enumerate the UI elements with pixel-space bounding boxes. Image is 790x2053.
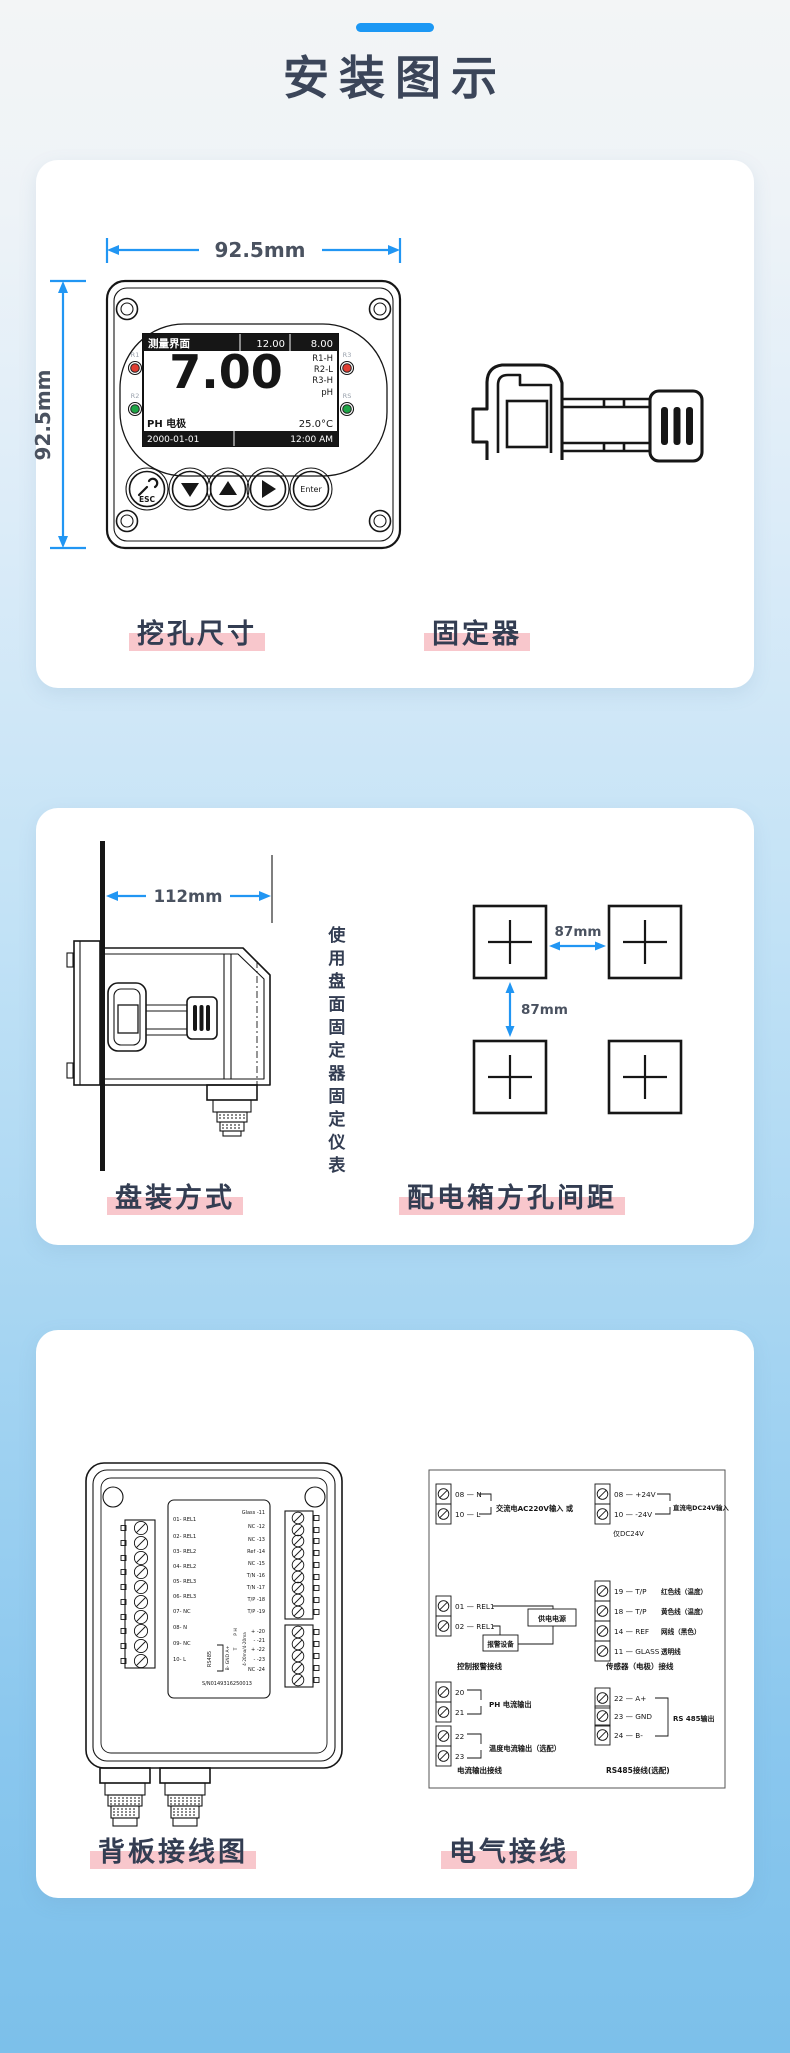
- lcd-setpoint-low: 8.00: [311, 339, 333, 350]
- terminal-label: 02 — REL1: [455, 1622, 495, 1631]
- rs485-wiring-caption: RS485接线(选配): [606, 1765, 670, 1775]
- svg-text:R1: R1: [131, 351, 140, 359]
- terminal-label: 22: [455, 1732, 464, 1741]
- terminal-label: 03- REL2: [173, 1549, 196, 1555]
- caption-panel-mounting: 盘装方式: [107, 1176, 243, 1215]
- terminal-label: 05- REL3: [173, 1579, 196, 1585]
- title-accent-bar: [356, 23, 434, 32]
- terminal-label: 11 — GLASS: [614, 1647, 660, 1656]
- svg-text:R2: R2: [131, 392, 140, 400]
- terminal-label: 10 — L: [455, 1510, 481, 1519]
- rs485-label: RS485: [207, 1651, 213, 1667]
- caption-hole-spacing: 配电箱方孔间距: [399, 1176, 625, 1215]
- terminal-label: NC -15: [248, 1561, 265, 1567]
- terminal-label: 19 — T/P: [614, 1587, 647, 1596]
- current-output-group: 20 21 22 23 PH 电流输出 温度电流输出（选配） 电流输出接线: [436, 1682, 561, 1775]
- terminal-label: 08 — N: [455, 1490, 482, 1499]
- mounting-note: 使用盘面固定器固定仪表: [324, 926, 344, 1179]
- caption-cutout-size: 挖孔尺寸: [129, 612, 265, 651]
- terminal-label: 06- REL3: [173, 1594, 196, 1600]
- terminal-label: NC -12: [248, 1524, 265, 1530]
- lcd-temperature: 25.0°C: [299, 419, 333, 430]
- dim-depth-label: 112mm: [154, 887, 223, 906]
- terminal-label: 09- NC: [173, 1641, 191, 1647]
- dim-height-label: 92.5mm: [31, 369, 55, 460]
- terminal-label: 20: [455, 1688, 465, 1697]
- terminal-label: 23: [455, 1752, 465, 1761]
- terminal-label: 23 — GND: [614, 1712, 652, 1721]
- terminal-label: 02- REL1: [173, 1534, 196, 1540]
- ph-output-label: PH 电流输出: [489, 1700, 532, 1709]
- terminal-label: 14 — REF: [614, 1627, 649, 1636]
- ph-channel-label: P H: [233, 1628, 239, 1636]
- dc-note: 仅DC24V: [613, 1529, 644, 1538]
- terminal-label: Glass -11: [242, 1510, 265, 1516]
- page-background: 安装图示 92.5mm 92.5mm: [0, 0, 790, 2053]
- wire-color-label: 红色线（温度）: [661, 1587, 707, 1596]
- rs485-output-label: RS 485输出: [673, 1714, 714, 1723]
- terminal-label: 22 — A+: [614, 1694, 646, 1703]
- lcd-date: 2000-01-01: [147, 435, 199, 445]
- backplate-drawing: 01- REL1 02- REL1 03- REL2 04- REL2 05- …: [80, 1453, 350, 1831]
- terminal-label: - -23: [253, 1657, 265, 1663]
- depth-dimension: 112mm: [106, 855, 272, 923]
- terminal-label: 07- NC: [173, 1609, 191, 1615]
- terminal-label: T/N -16: [246, 1573, 265, 1579]
- serial-number: S/N0149316250013: [202, 1681, 252, 1687]
- led-rs: RS: [341, 392, 354, 416]
- lcd-time: 12:00 AM: [290, 435, 333, 445]
- spacing-h-label: 87mm: [555, 924, 602, 940]
- caption-backplate-wiring: 背板接线图: [90, 1830, 256, 1869]
- led-r2: R2: [129, 392, 142, 416]
- spacing-v-dimension: 87mm: [506, 982, 568, 1037]
- terminal-label: T/N -17: [246, 1585, 265, 1591]
- relay-group: 01 — REL1 02 — REL1 供电电源 报警设备 控制报警接线: [436, 1596, 576, 1671]
- ac-power-group: 08 — N 10 — L 交流电AC220V输入 或: [436, 1484, 574, 1524]
- power-supply-box: 供电电源: [537, 1614, 566, 1623]
- wire-color-label: 网线（黑色）: [661, 1627, 701, 1636]
- right-terminal-strips: [285, 1511, 319, 1687]
- lcd-relay-status-3: R3-H: [312, 376, 333, 386]
- terminal-label: T/P -18: [246, 1597, 265, 1603]
- wire-color-label: 黄色线（温度）: [661, 1607, 707, 1616]
- svg-text:R3: R3: [343, 351, 352, 359]
- lcd-screen: 测量界面 12.00 8.00 7.00 R1-H R2-L R3-H pH P…: [143, 334, 338, 446]
- side-view-drawing: 112mm: [38, 833, 295, 1183]
- wrench-icon: [139, 479, 157, 495]
- caption-fixer: 固定器: [424, 612, 530, 651]
- left-terminal-strip: [121, 1520, 155, 1668]
- led-r1: R1: [129, 351, 142, 375]
- caption-electrical-wiring: 电气接线: [441, 1830, 577, 1869]
- front-view-drawing: 92.5mm 92.5mm: [36, 230, 406, 560]
- terminal-label: 18 — T/P: [614, 1607, 647, 1616]
- terminal-label: NC -24: [248, 1667, 265, 1673]
- ac-input-label: 交流电AC220V输入 或: [496, 1504, 574, 1513]
- spacing-v-label: 87mm: [521, 1002, 568, 1018]
- terminal-label: + -20: [251, 1629, 265, 1635]
- enter-key-label: Enter: [300, 485, 322, 494]
- rs485-group: 22 — A+ 23 — GND 24 — B- RS 485输出 RS485接…: [595, 1688, 714, 1775]
- right-key: [247, 468, 289, 510]
- terminal-label: 10 — -24V: [614, 1510, 652, 1519]
- height-dimension: 92.5mm: [31, 281, 86, 548]
- current-output-label: 4-20ma/4-20ma: [242, 1632, 247, 1666]
- arrow-right-icon: [262, 480, 276, 498]
- terminal-label: - -21: [253, 1638, 265, 1644]
- section-wiring: 01- REL1 02- REL1 03- REL2 04- REL2 05- …: [36, 1330, 754, 1898]
- terminal-label: 01 — REL1: [455, 1602, 495, 1611]
- dim-width-label: 92.5mm: [214, 238, 305, 262]
- down-key: [169, 468, 211, 510]
- terminal-label: 04- REL2: [173, 1564, 196, 1570]
- terminal-label: 24 — B-: [614, 1731, 643, 1740]
- lcd-relay-status-1: R1-H: [312, 354, 333, 364]
- terminal-label: Ref -14: [247, 1549, 265, 1555]
- sensor-group: 19 — T/P 红色线（温度） 18 — T/P 黄色线（温度） 14 — R…: [595, 1581, 707, 1671]
- alarm-device-box: 报警设备: [487, 1640, 514, 1649]
- lcd-probe-label: PH 电极: [147, 417, 187, 430]
- lcd-relay-status-2: R2-L: [314, 365, 333, 375]
- page-title: 安装图示: [0, 42, 790, 108]
- esc-key: ESC: [126, 468, 168, 510]
- terminal-label: 21: [455, 1708, 464, 1717]
- wiring-diagram: 08 — N 10 — L 交流电AC220V输入 或 08 — +24V 10…: [427, 1468, 727, 1790]
- arrow-up-icon: [219, 481, 237, 495]
- up-key: [207, 468, 249, 510]
- svg-text:RS: RS: [343, 392, 352, 400]
- arrow-down-icon: [181, 483, 199, 497]
- lcd-main-value: 7.00: [169, 345, 283, 399]
- enter-key: Enter: [290, 468, 332, 510]
- terminal-label: T/P -19: [246, 1609, 265, 1615]
- sensor-wiring-caption: 传感器（电极）接线: [605, 1661, 674, 1671]
- width-dimension: 92.5mm: [107, 238, 400, 263]
- terminal-label: 10- L: [173, 1657, 186, 1663]
- current-wiring-caption: 电流输出接线: [457, 1765, 502, 1775]
- spacing-h-dimension: 87mm: [549, 924, 606, 951]
- dc-power-group: 08 — +24V 10 — -24V 直流电DC24V输入 仅DC24V: [595, 1484, 729, 1538]
- esc-key-label: ESC: [139, 495, 156, 504]
- temp-output-label: 温度电流输出（选配）: [488, 1744, 561, 1753]
- terminal-label: NC -13: [248, 1537, 265, 1543]
- rs485-pins-label: B- GND A+: [225, 1645, 231, 1670]
- control-wiring-caption: 控制报警接线: [457, 1661, 502, 1671]
- section-cutout-and-fixer: 92.5mm 92.5mm: [36, 160, 754, 688]
- terminal-label-panel: 01- REL1 02- REL1 03- REL2 04- REL2 05- …: [168, 1500, 270, 1698]
- dc-input-label: 直流电DC24V输入: [673, 1503, 729, 1512]
- section-mounting: 112mm: [36, 808, 754, 1245]
- cable-glands: [100, 1768, 210, 1826]
- terminal-label: 08 — +24V: [614, 1490, 656, 1499]
- led-r3: R3: [341, 351, 354, 375]
- lcd-unit-label: pH: [321, 388, 333, 398]
- hole-spacing-drawing: 87mm 87mm: [444, 838, 694, 1128]
- fixer-side-view: [108, 983, 217, 1051]
- temp-channel-label: T: [233, 1647, 239, 1651]
- fixer-drawing: [454, 343, 704, 463]
- terminal-label: 01- REL1: [173, 1517, 196, 1523]
- cable-gland: [207, 1085, 257, 1136]
- terminal-label: + -22: [251, 1647, 265, 1653]
- wire-color-label: 透明线: [661, 1647, 681, 1656]
- terminal-label: 08- N: [173, 1625, 187, 1631]
